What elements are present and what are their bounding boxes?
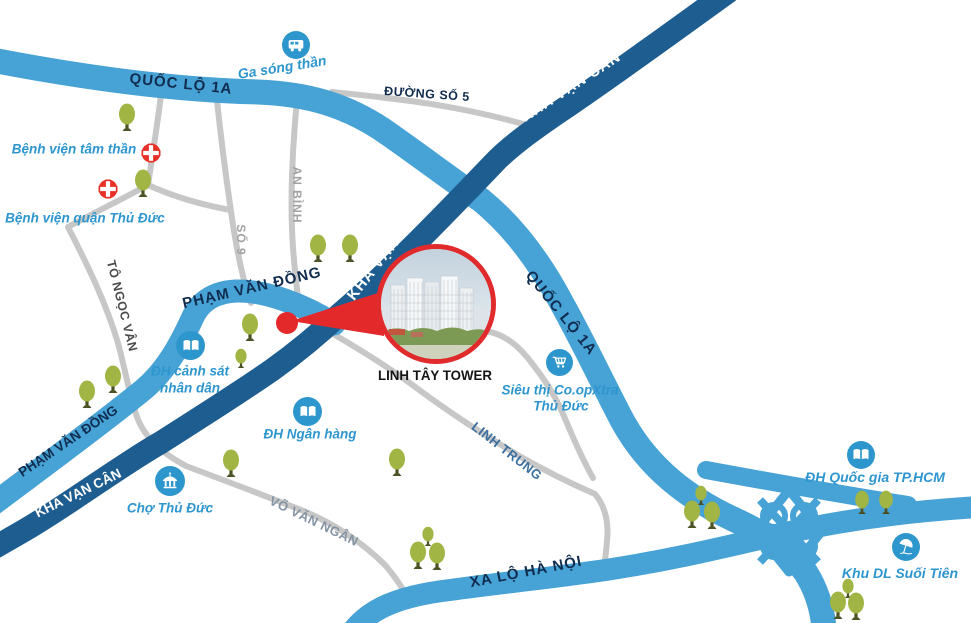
umbrella-icon: [892, 533, 920, 561]
tree-icon: [235, 349, 246, 368]
tree-icon: [105, 366, 121, 394]
landmark-label-bv-tam-than: Bệnh viện tâm thần: [12, 142, 137, 157]
tree-icon: [223, 450, 239, 478]
tree-icon: [429, 543, 445, 571]
landmark-label-sieu-thi-line2: Thủ Đức: [533, 399, 588, 414]
tower-photo-callout: [376, 244, 496, 364]
road-so-9: [216, 91, 251, 303]
market-icon: [155, 466, 185, 496]
location-dot: [276, 312, 298, 334]
cart-icon: [546, 349, 573, 376]
book-icon-quoc-gia: [847, 441, 875, 469]
landmark-label-cho-thu-duc: Chợ Thủ Đức: [127, 501, 213, 516]
hospital-icon-quan-thu-duc: [96, 177, 120, 201]
road-vo-van-ngan: [186, 466, 409, 599]
book-icon-canh-sat: [176, 331, 205, 360]
landmark-label-dh-canh-sat-line1: ĐH cảnh sát: [151, 364, 229, 379]
tree-icon: [242, 314, 258, 342]
hospital-icon-tam-than: [139, 141, 163, 165]
tree-icon: [119, 104, 135, 132]
tree-icon: [389, 449, 405, 477]
bus-icon: [282, 31, 310, 59]
road-label-an-binh: AN BÌNH: [290, 167, 304, 224]
tree-icon: [79, 381, 95, 409]
tower-photo: [381, 249, 491, 359]
road-label-so-9: SỐ 9: [234, 224, 248, 255]
tree-icon: [684, 501, 700, 529]
map-canvas[interactable]: QUỐC LỘ 1A KHA VẠN CÂN ĐƯỜNG SỐ 5 AN BÌN…: [0, 0, 971, 623]
tree-icon: [342, 235, 358, 263]
landmark-label-dh-quoc-gia: ĐH Quốc gia TP.HCM: [805, 469, 945, 485]
book-icon-ngan-hang: [293, 397, 322, 426]
landmark-label-bv-quan-thu-duc: Bệnh viện quận Thủ Đức: [5, 211, 165, 226]
tree-icon: [310, 235, 326, 263]
tree-icon: [422, 527, 433, 546]
landmark-label-khu-dl-suoi-tien: Khu DL Suối Tiên: [842, 565, 958, 581]
landmark-label-dh-canh-sat-line2: nhân dân: [160, 381, 220, 396]
landmark-label-dh-ngan-hang: ĐH Ngân hàng: [264, 427, 357, 442]
road-connector-c: [148, 185, 230, 210]
landmark-label-sieu-thi-line1: Siêu thị Co.opXtra: [501, 383, 618, 398]
tree-icon: [848, 593, 864, 621]
tower-caption: LINH TÂY TOWER: [378, 367, 492, 383]
tree-icon: [410, 542, 426, 570]
